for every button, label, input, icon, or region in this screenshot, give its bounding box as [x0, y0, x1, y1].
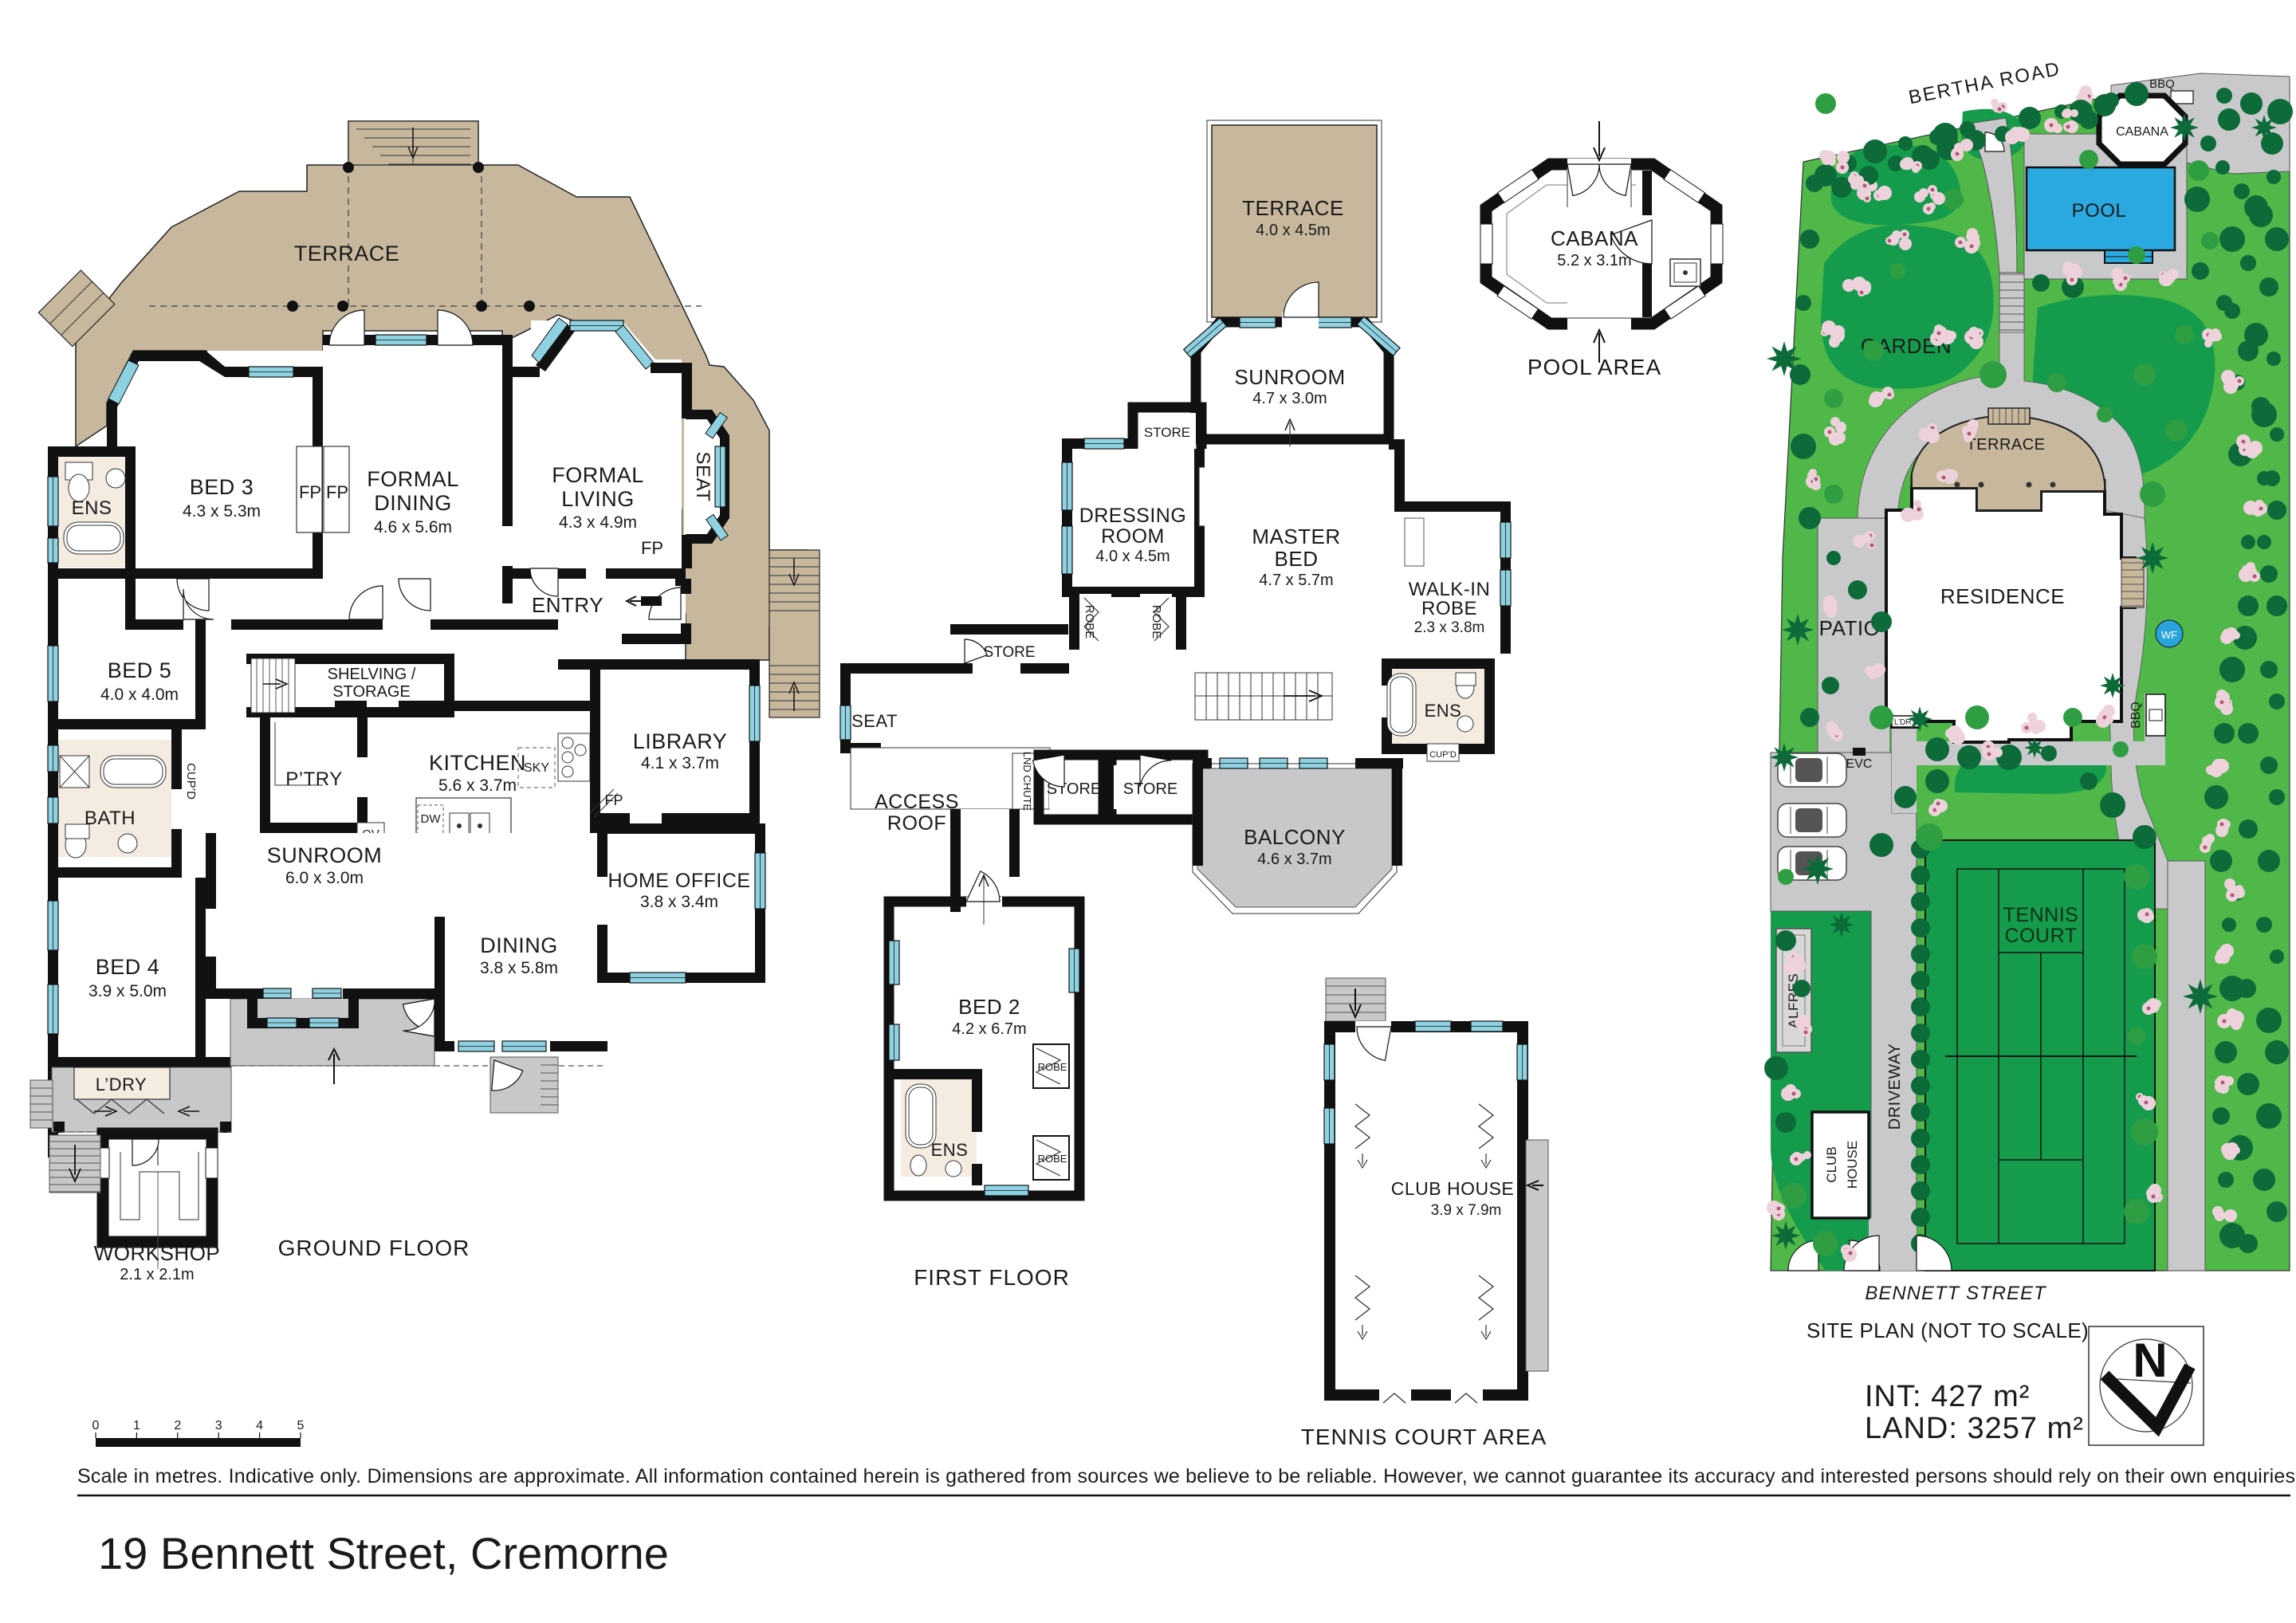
svg-text:DINING: DINING: [480, 933, 558, 957]
svg-text:FP: FP: [299, 482, 321, 502]
svg-text:WF: WF: [2161, 629, 2177, 641]
svg-text:DINING: DINING: [374, 491, 452, 515]
svg-text:LIBRARY: LIBRARY: [633, 729, 728, 753]
svg-text:BED 4: BED 4: [96, 955, 160, 979]
svg-text:DRESSING: DRESSING: [1079, 505, 1187, 527]
svg-text:STORE: STORE: [983, 644, 1035, 661]
svg-text:INT: 427 m²: INT: 427 m²: [1865, 1380, 2030, 1413]
svg-text:BED 5: BED 5: [108, 658, 172, 682]
svg-text:DW: DW: [421, 812, 442, 826]
svg-text:FIRST FLOOR: FIRST FLOOR: [914, 1265, 1070, 1290]
svg-text:0: 0: [92, 1419, 100, 1432]
svg-text:L’DRY: L’DRY: [96, 1075, 147, 1094]
svg-text:SUNROOM: SUNROOM: [267, 843, 383, 867]
svg-text:ROBE: ROBE: [1150, 605, 1163, 639]
svg-text:RESIDENCE: RESIDENCE: [1940, 584, 2065, 608]
svg-text:Scale in metres. Indicative on: Scale in metres. Indicative only. Dimens…: [77, 1465, 2296, 1487]
svg-text:6.0 x 3.0m: 6.0 x 3.0m: [285, 869, 364, 887]
svg-text:ENS: ENS: [1425, 701, 1462, 721]
svg-text:HOME OFFICE: HOME OFFICE: [607, 870, 750, 892]
svg-text:3.9 x 5.0m: 3.9 x 5.0m: [88, 982, 167, 1000]
svg-text:HOUSE: HOUSE: [1845, 1141, 1860, 1189]
svg-text:EVC: EVC: [1846, 757, 1873, 771]
svg-text:BED: BED: [1275, 547, 1319, 571]
svg-text:BBQ: BBQ: [2129, 701, 2143, 729]
svg-text:FORMAL: FORMAL: [367, 467, 459, 491]
svg-text:POOL: POOL: [2072, 200, 2127, 222]
svg-text:WORKSHOP: WORKSHOP: [94, 1241, 221, 1265]
svg-text:4.1 x 3.7m: 4.1 x 3.7m: [641, 754, 719, 772]
svg-text:ROBE: ROBE: [1083, 605, 1096, 639]
svg-text:4.7 x 3.0m: 4.7 x 3.0m: [1252, 390, 1327, 407]
svg-text:FP: FP: [326, 482, 348, 502]
svg-text:SITE PLAN (NOT TO SCALE): SITE PLAN (NOT TO SCALE): [1807, 1318, 2089, 1342]
svg-text:SEAT: SEAT: [851, 711, 898, 731]
svg-text:ROBE: ROBE: [1421, 598, 1477, 619]
svg-text:2.3 x 3.8m: 2.3 x 3.8m: [1414, 619, 1485, 636]
svg-text:SKY: SKY: [524, 761, 549, 775]
svg-text:4.0 x 4.5m: 4.0 x 4.5m: [1095, 548, 1170, 565]
svg-text:P’TRY: P’TRY: [285, 768, 342, 790]
svg-text:CUP’D: CUP’D: [1429, 750, 1457, 760]
svg-text:WALK-IN: WALK-IN: [1409, 579, 1491, 600]
svg-text:ACCESS: ACCESS: [875, 791, 959, 813]
svg-text:LND CHUTE: LND CHUTE: [1021, 752, 1033, 811]
svg-text:CABANA: CABANA: [2116, 125, 2168, 139]
svg-text:FP: FP: [604, 792, 623, 808]
svg-text:TERRACE: TERRACE: [294, 242, 400, 265]
svg-text:TERRACE: TERRACE: [1966, 436, 2045, 454]
svg-text:5: 5: [297, 1419, 305, 1432]
svg-text:ROOM: ROOM: [1101, 525, 1165, 548]
svg-text:BED 3: BED 3: [190, 475, 254, 499]
svg-text:4.6 x 5.6m: 4.6 x 5.6m: [374, 518, 452, 536]
svg-text:PATIO: PATIO: [1819, 616, 1881, 640]
svg-text:3: 3: [215, 1419, 222, 1432]
svg-text:ENS: ENS: [931, 1140, 969, 1160]
svg-text:POOL AREA: POOL AREA: [1527, 355, 1661, 379]
svg-text:LIVING: LIVING: [561, 487, 635, 511]
svg-text:STORAGE: STORAGE: [332, 683, 410, 701]
svg-text:STORE: STORE: [1123, 780, 1178, 798]
svg-text:TENNIS: TENNIS: [2003, 904, 2079, 926]
svg-text:4: 4: [256, 1419, 263, 1432]
svg-text:BED 2: BED 2: [958, 995, 1020, 1019]
svg-text:FORMAL: FORMAL: [552, 463, 644, 487]
svg-text:TERRACE: TERRACE: [1242, 196, 1344, 220]
svg-text:ROOF: ROOF: [887, 812, 946, 835]
svg-text:5.6 x 3.7m: 5.6 x 3.7m: [438, 776, 517, 795]
svg-text:FP: FP: [641, 538, 663, 558]
svg-text:19 Bennett Street, Cremorne: 19 Bennett Street, Cremorne: [98, 1528, 669, 1578]
svg-text:BBQ: BBQ: [2149, 77, 2175, 91]
svg-text:CLUB: CLUB: [1824, 1146, 1839, 1182]
svg-text:2.1 x 2.1m: 2.1 x 2.1m: [120, 1266, 194, 1283]
svg-text:1: 1: [133, 1419, 140, 1432]
svg-text:KITCHEN: KITCHEN: [429, 751, 526, 775]
svg-text:BENNETT STREET: BENNETT STREET: [1865, 1283, 2047, 1304]
svg-text:3.9 x 7.9m: 3.9 x 7.9m: [1431, 1202, 1502, 1219]
svg-text:TENNIS COURT AREA: TENNIS COURT AREA: [1301, 1425, 1547, 1449]
svg-text:BATH: BATH: [85, 808, 136, 829]
svg-text:4.0 x 4.5m: 4.0 x 4.5m: [1256, 222, 1330, 239]
svg-text:BALCONY: BALCONY: [1244, 825, 1346, 849]
svg-text:DRIVEWAY: DRIVEWAY: [1886, 1043, 1904, 1130]
svg-text:STORE: STORE: [1144, 425, 1190, 440]
svg-text:COURT: COURT: [2005, 925, 2078, 947]
svg-text:GROUND FLOOR: GROUND FLOOR: [278, 1236, 470, 1260]
svg-text:CABANA: CABANA: [1551, 226, 1638, 250]
svg-text:MASTER: MASTER: [1252, 525, 1340, 548]
svg-text:CUP’D: CUP’D: [184, 763, 198, 800]
svg-text:3.8 x 3.4m: 3.8 x 3.4m: [640, 893, 718, 911]
svg-text:ENTRY: ENTRY: [532, 593, 603, 617]
svg-text:SHELVING /: SHELVING /: [328, 666, 416, 683]
svg-text:4.3 x 5.3m: 4.3 x 5.3m: [183, 502, 261, 521]
svg-text:4.3 x 4.9m: 4.3 x 4.9m: [559, 513, 637, 532]
svg-text:2: 2: [174, 1419, 181, 1432]
svg-text:4.7 x 5.7m: 4.7 x 5.7m: [1259, 572, 1333, 589]
svg-text:SUNROOM: SUNROOM: [1234, 365, 1345, 389]
svg-text:LAND: 3257 m²: LAND: 3257 m²: [1865, 1412, 2084, 1445]
svg-text:SEAT: SEAT: [692, 452, 714, 502]
svg-text:CLUB HOUSE: CLUB HOUSE: [1391, 1178, 1515, 1199]
svg-text:4.0 x 4.0m: 4.0 x 4.0m: [100, 686, 179, 704]
svg-text:4.2 x 6.7m: 4.2 x 6.7m: [952, 1020, 1026, 1038]
svg-text:ROBE: ROBE: [1038, 1153, 1067, 1165]
svg-text:4.6 x 3.7m: 4.6 x 3.7m: [1257, 851, 1331, 868]
svg-text:ROBE: ROBE: [1038, 1061, 1067, 1073]
svg-text:N: N: [2133, 1334, 2167, 1387]
svg-text:5.2 x 3.1m: 5.2 x 3.1m: [1557, 252, 1631, 269]
svg-text:3.8 x 5.8m: 3.8 x 5.8m: [480, 959, 558, 977]
